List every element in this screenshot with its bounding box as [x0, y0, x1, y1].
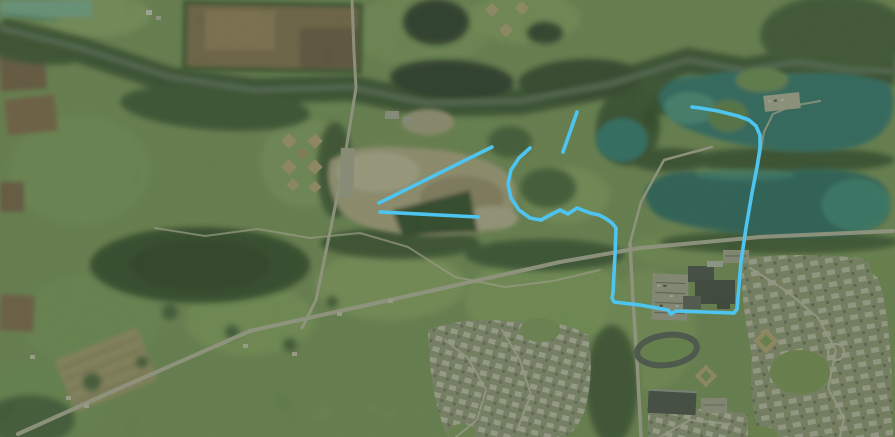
- texture-grain: [0, 0, 895, 437]
- satellite-map-canvas[interactable]: [0, 0, 895, 437]
- screenshot-root: [0, 0, 895, 437]
